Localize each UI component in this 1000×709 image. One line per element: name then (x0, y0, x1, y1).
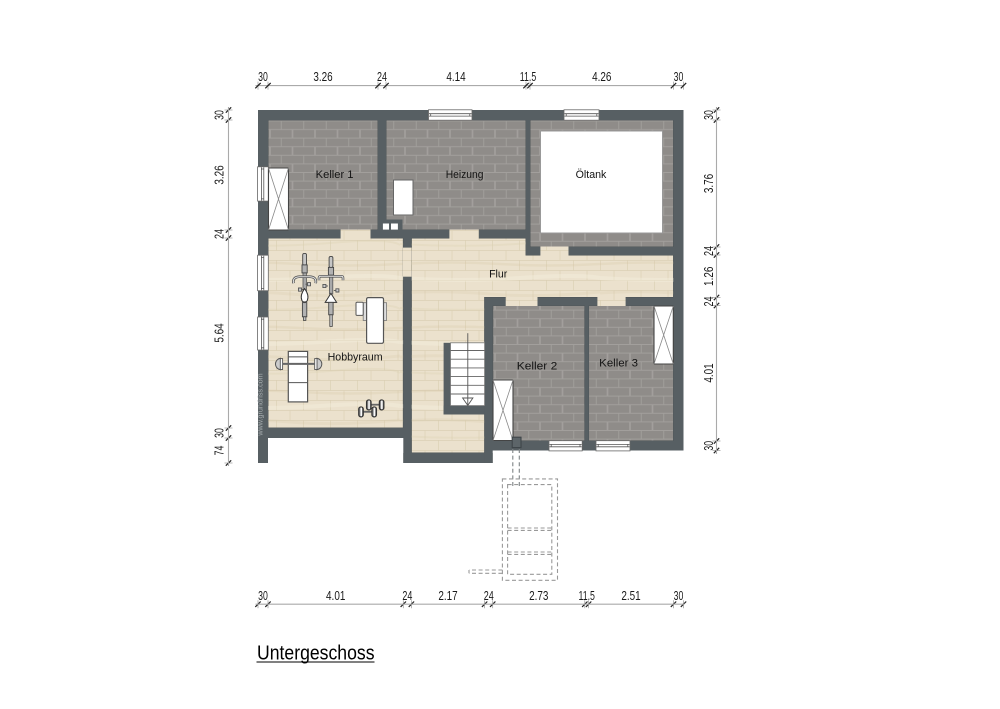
svg-text:30: 30 (674, 69, 684, 84)
svg-text:30: 30 (258, 69, 268, 84)
svg-text:Keller 2: Keller 2 (517, 361, 558, 373)
svg-text:30: 30 (212, 110, 227, 120)
svg-text:2.73: 2.73 (529, 588, 548, 603)
svg-text:2.51: 2.51 (621, 588, 640, 603)
svg-text:3.26: 3.26 (313, 69, 332, 84)
svg-text:3.76: 3.76 (701, 174, 716, 193)
svg-text:Öltank: Öltank (576, 169, 607, 181)
svg-text:30: 30 (258, 588, 268, 603)
svg-text:Heizung: Heizung (446, 169, 484, 181)
svg-text:74: 74 (212, 446, 227, 456)
svg-text:2.17: 2.17 (438, 588, 457, 603)
svg-text:24: 24 (484, 588, 494, 603)
svg-text:11.5: 11.5 (578, 588, 595, 603)
svg-text:24: 24 (701, 297, 716, 307)
svg-text:24: 24 (701, 246, 716, 256)
svg-text:Hobbyraum: Hobbyraum (328, 352, 383, 364)
svg-text:Untergeschoss: Untergeschoss (257, 642, 375, 665)
svg-text:30: 30 (674, 588, 684, 603)
svg-text:3.26: 3.26 (212, 165, 227, 184)
svg-text:Keller 1: Keller 1 (316, 169, 354, 181)
svg-text:4.01: 4.01 (326, 588, 345, 603)
svg-text:Keller 3: Keller 3 (599, 358, 638, 370)
svg-text:www.grundriss.com: www.grundriss.com (256, 373, 265, 436)
svg-text:11.5: 11.5 (520, 69, 537, 84)
svg-text:30: 30 (701, 441, 716, 451)
svg-text:4.26: 4.26 (592, 69, 611, 84)
svg-text:30: 30 (701, 110, 716, 120)
svg-text:4.01: 4.01 (701, 363, 716, 382)
svg-text:5.64: 5.64 (212, 323, 227, 342)
svg-text:Flur: Flur (489, 269, 508, 281)
svg-text:24: 24 (212, 229, 227, 239)
svg-text:30: 30 (212, 428, 227, 438)
svg-text:4.14: 4.14 (446, 69, 465, 84)
svg-text:24: 24 (377, 69, 387, 84)
svg-text:1.26: 1.26 (701, 267, 716, 286)
svg-text:24: 24 (402, 588, 412, 603)
